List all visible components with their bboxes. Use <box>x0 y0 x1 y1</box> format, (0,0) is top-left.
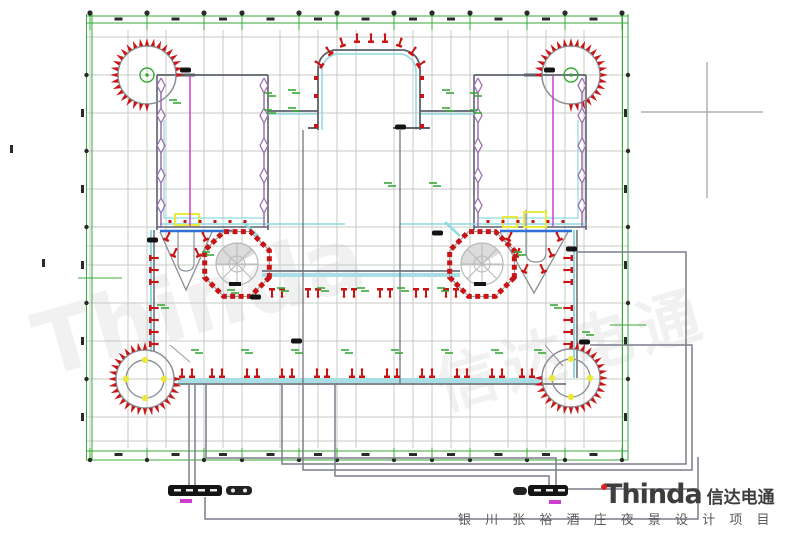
curtain-zigzag-lines <box>157 76 586 228</box>
light-fixtures <box>149 33 573 378</box>
drawing-page: Thinda 信达电通 Thinda信达电通 银 川 张 裕 酒 庄 夜 景 设… <box>0 0 800 552</box>
stair-octagon-right <box>450 232 515 297</box>
crosshair-mark <box>641 62 763 198</box>
distribution-box-left <box>168 485 252 503</box>
logo-thinda-text: Thinda <box>604 479 702 510</box>
distribution-box-right <box>513 485 568 504</box>
corner-tower-bottom-right <box>534 341 608 415</box>
logo-chinese-text: 信达电通 <box>707 488 775 508</box>
logo-red-i-dot <box>601 484 607 490</box>
cad-floor-plan-canvas <box>0 0 800 552</box>
building-outline <box>151 50 586 384</box>
axis-frame <box>10 10 646 462</box>
stair-octagon-left <box>205 232 270 297</box>
company-logo: Thinda信达电通 <box>604 479 775 510</box>
project-title-caption: 银 川 张 裕 酒 庄 夜 景 设 计 项 目 <box>458 509 774 528</box>
